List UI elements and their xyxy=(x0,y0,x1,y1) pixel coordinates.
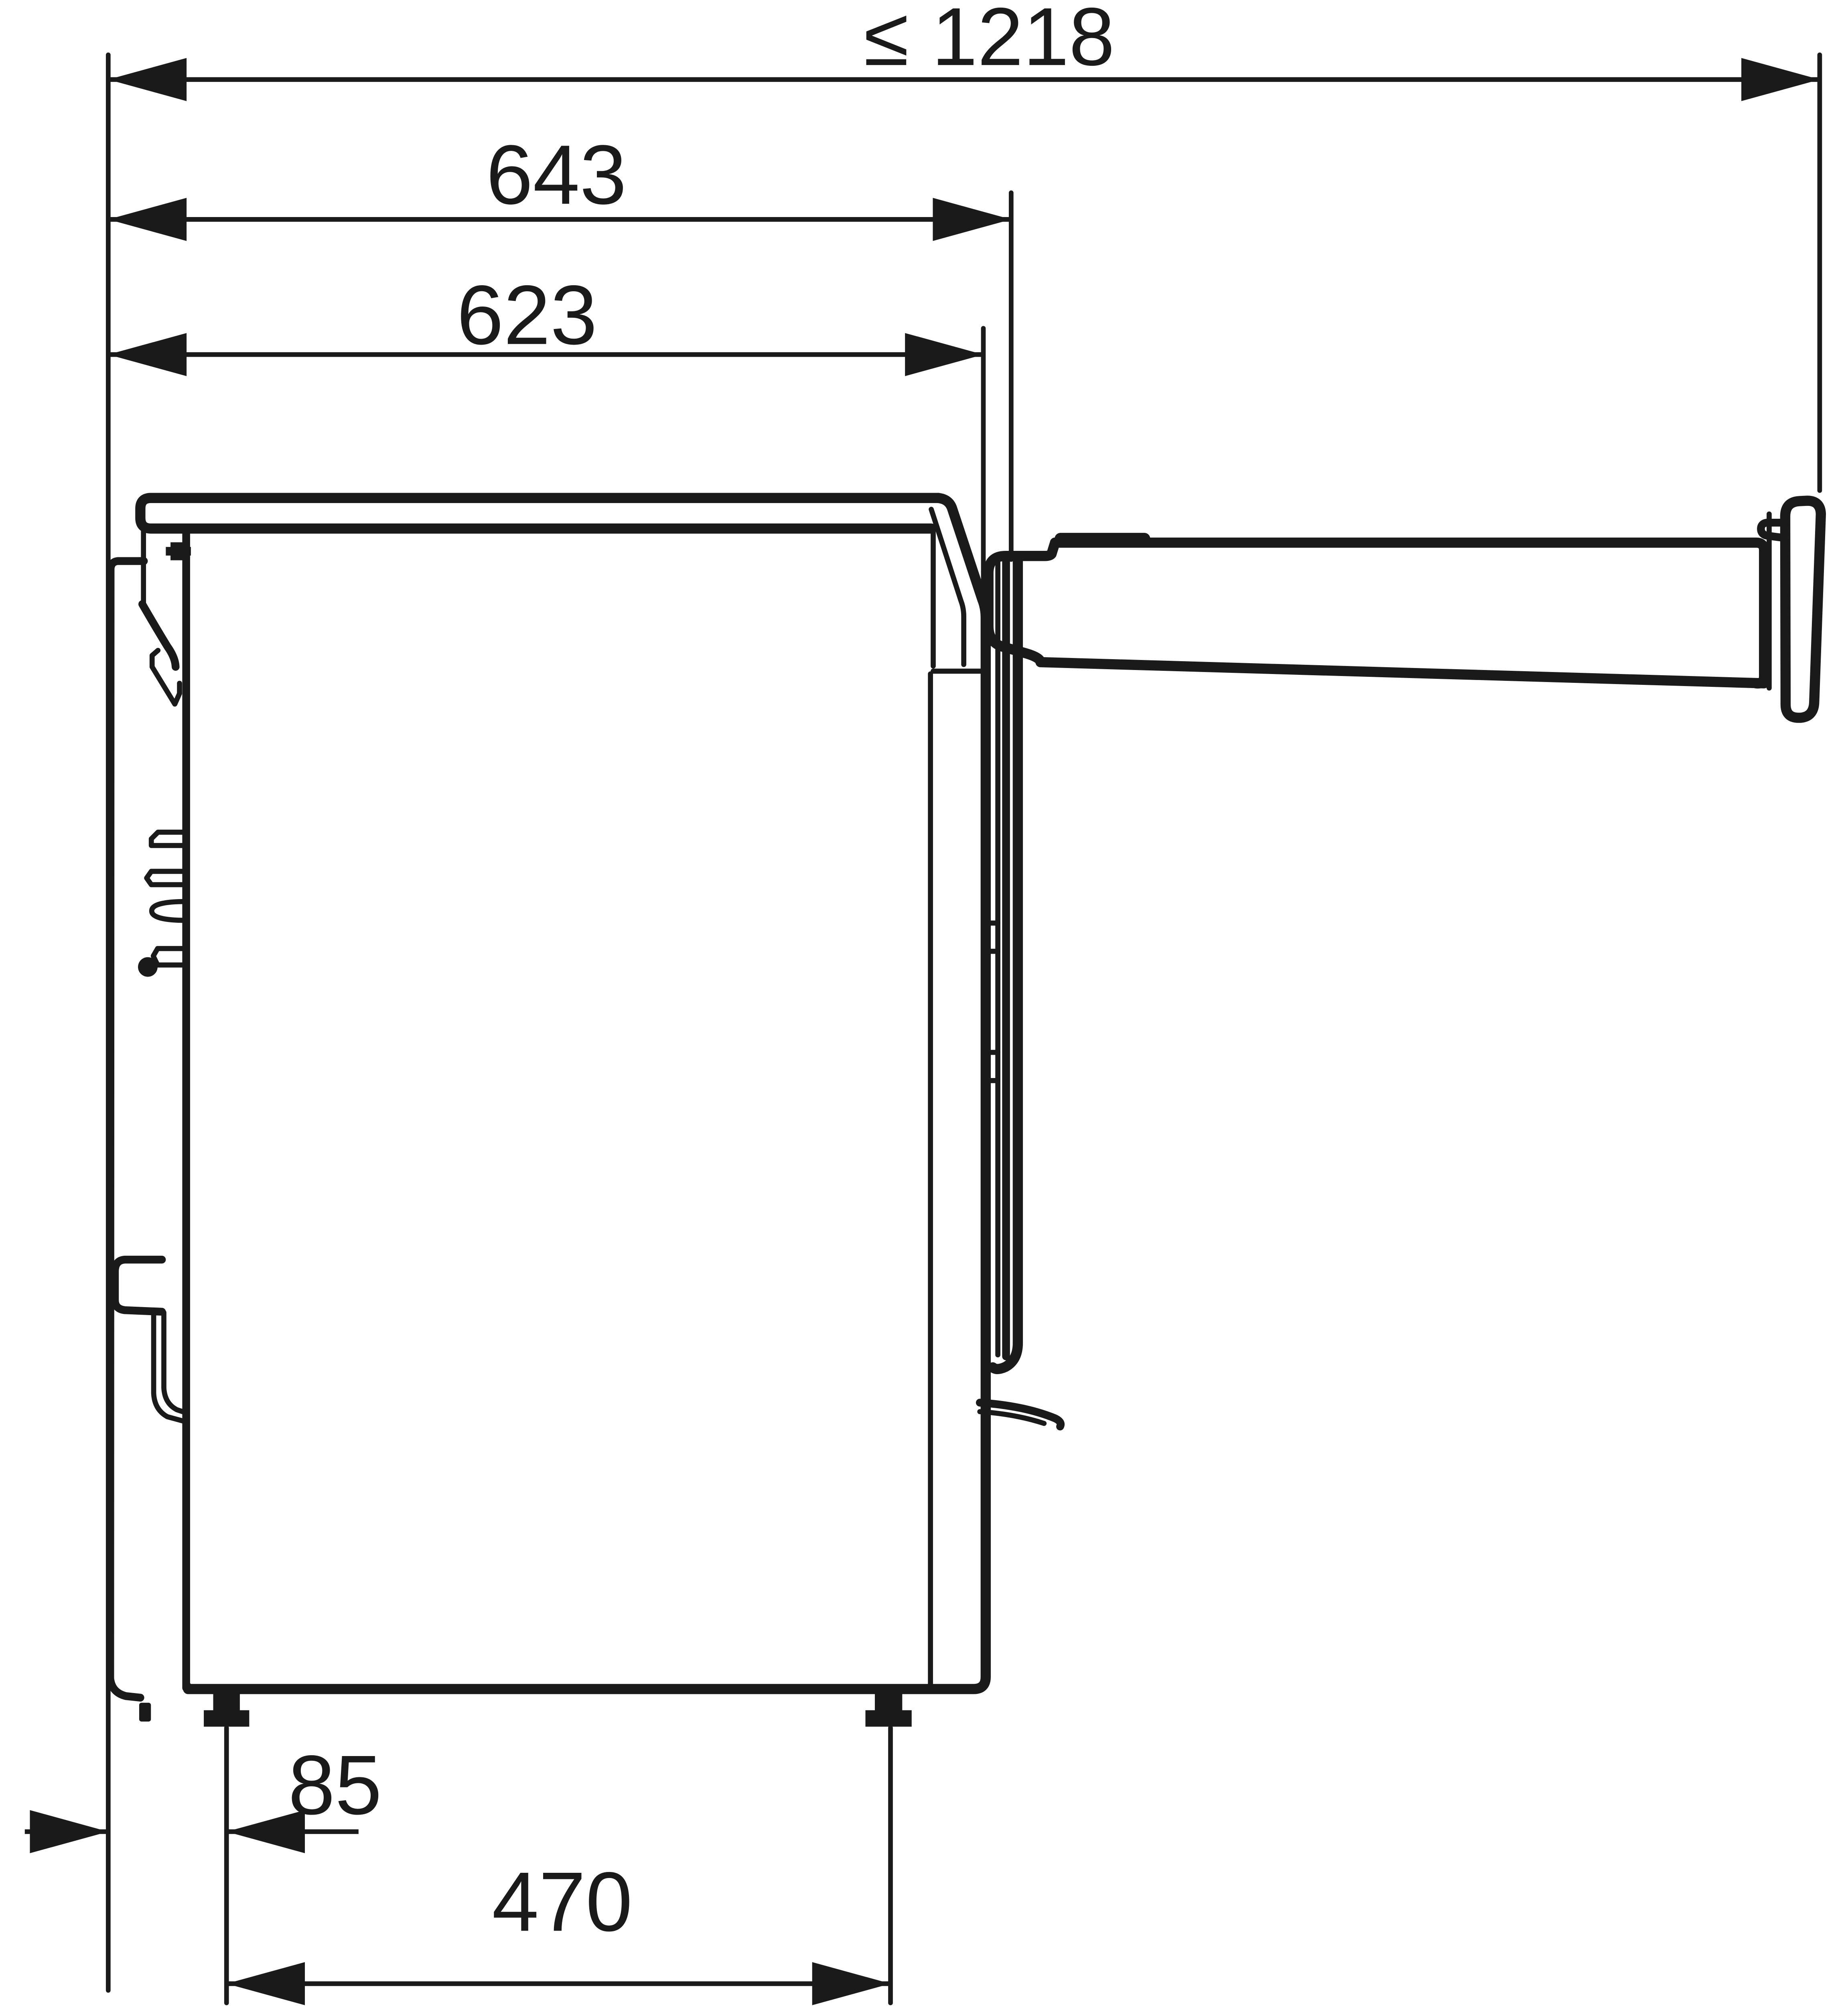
arrowhead-right-icon xyxy=(1741,58,1820,101)
front-foot xyxy=(866,1689,912,1727)
technical-drawing-canvas: ≤ 1218 643 623 xyxy=(0,0,1848,2006)
dimension-label-door-front: 643 xyxy=(486,128,627,222)
arrowhead-left-icon xyxy=(108,58,187,101)
door-end-cap xyxy=(1785,501,1821,718)
dimension-label-rear-foot-offset: 85 xyxy=(288,1738,382,1832)
rear-base-corner xyxy=(186,1678,197,1689)
dimension-label-total-depth: ≤ 1218 xyxy=(864,0,1115,83)
arrowhead-right-icon xyxy=(812,1962,891,2005)
lid-outline xyxy=(140,498,938,528)
appliance-dimension-drawing: ≤ 1218 643 623 xyxy=(0,0,1848,2006)
arrowhead-right-icon xyxy=(933,198,1011,241)
rear-bracket-1 xyxy=(151,832,186,845)
front-face-outline xyxy=(188,498,986,1689)
arrowhead-right-pointing-icon xyxy=(30,1810,108,1853)
inlet-valve-housing xyxy=(115,1260,162,1312)
rear-hose-cover-edge xyxy=(110,561,144,1697)
dimension-rear-foot-offset: 85 xyxy=(25,1728,382,2003)
rear-glide-pad xyxy=(139,1703,151,1722)
rear-bracket-2 xyxy=(147,871,187,885)
dimension-label-body-depth: 623 xyxy=(457,268,597,362)
dimension-label-foot-spacing: 470 xyxy=(492,1855,632,1949)
arrowhead-left-icon xyxy=(108,333,187,376)
rear-bracket-arch xyxy=(152,901,186,920)
drain-hose-curve xyxy=(142,604,176,667)
arrowhead-right-icon xyxy=(905,333,983,376)
door-bottom-edge xyxy=(1041,662,1764,683)
appliance-side-view xyxy=(110,498,1821,1727)
hose-cross-section xyxy=(138,957,158,977)
rear-foot xyxy=(204,1689,249,1727)
arrowhead-left-icon xyxy=(227,1962,305,2005)
dimension-body-depth: 623 xyxy=(108,268,984,611)
rear-bracket-3 xyxy=(153,948,186,965)
arrowhead-left-icon xyxy=(108,198,187,241)
